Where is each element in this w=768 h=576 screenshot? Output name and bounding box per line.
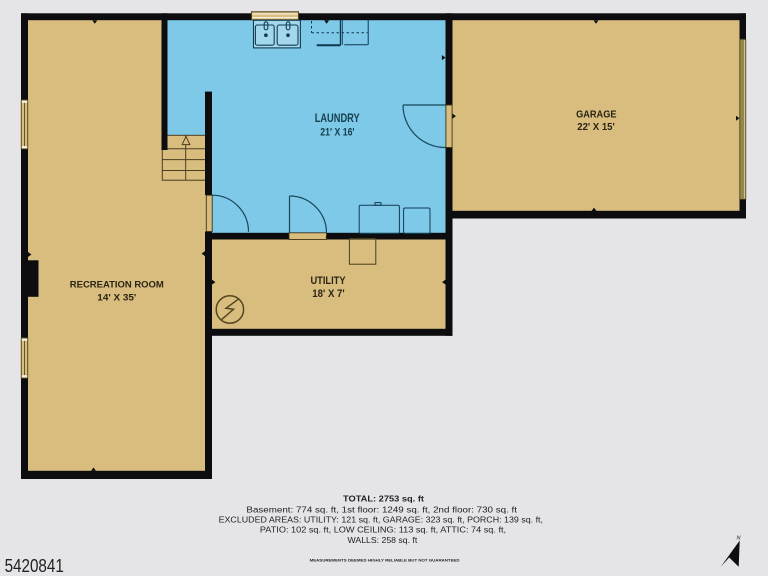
svg-text:5420841: 5420841: [5, 555, 64, 576]
svg-text:PATIO: 102 sq. ft, LOW CEILING: PATIO: 102 sq. ft, LOW CEILING: 113 sq. …: [260, 526, 506, 535]
svg-text:WALLS: 258 sq. ft: WALLS: 258 sq. ft: [348, 536, 419, 545]
svg-text:RECREATION ROOM: RECREATION ROOM: [70, 279, 164, 290]
svg-text:Basement: 774 sq. ft, 1st floo: Basement: 774 sq. ft, 1st floor: 1249 sq…: [246, 505, 517, 514]
svg-text:MEASUREMENTS DEEMED HIGHLY REL: MEASUREMENTS DEEMED HIGHLY RELIABLE BUT …: [310, 558, 460, 562]
svg-text:LAUNDRY: LAUNDRY: [315, 113, 360, 125]
svg-text:EXCLUDED AREAS: UTILITY: 121 s: EXCLUDED AREAS: UTILITY: 121 sq. ft, GAR…: [219, 516, 543, 525]
svg-text:14' X 35': 14' X 35': [97, 292, 136, 302]
svg-text:N: N: [737, 536, 741, 542]
svg-text:TOTAL: 2753 sq. ft: TOTAL: 2753 sq. ft: [343, 495, 424, 504]
svg-text:UTILITY: UTILITY: [310, 275, 346, 287]
svg-text:18' X 7': 18' X 7': [312, 288, 344, 300]
svg-text:GARAGE: GARAGE: [576, 109, 616, 120]
svg-text:21' X 16': 21' X 16': [320, 127, 354, 139]
svg-text:22' X 15': 22' X 15': [577, 122, 615, 133]
